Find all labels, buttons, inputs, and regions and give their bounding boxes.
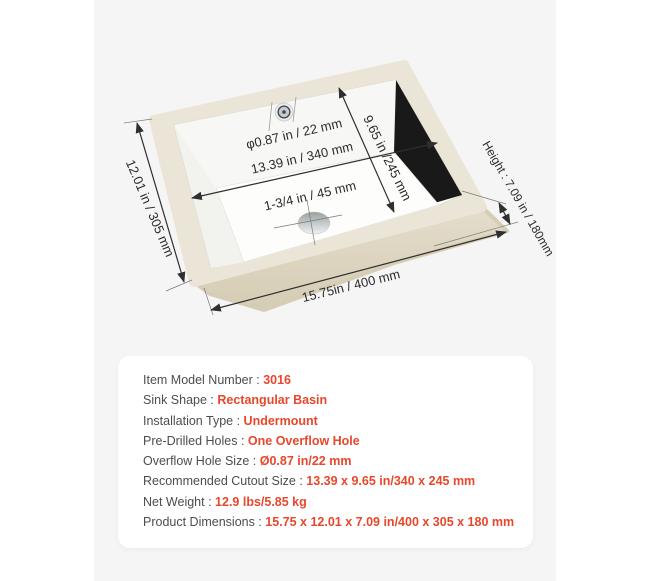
spec-label: Item Model Number : [143, 373, 260, 387]
spec-row-overflow-size: Overflow Hole Size : Ø0.87 in/22 mm [143, 451, 515, 471]
spec-row-weight: Net Weight : 12.9 lbs/5.85 kg [143, 492, 515, 512]
spec-value: 13.39 x 9.65 in/340 x 245 mm [306, 474, 475, 488]
spec-label: Pre-Drilled Holes : [143, 434, 244, 448]
spec-label: Recommended Cutout Size : [143, 474, 303, 488]
sink-dimension-diagram: 12.01 in / 305 mm 15.75in / 400 mm Heigh… [94, 0, 556, 352]
spec-value: 15.75 x 12.01 x 7.09 in/400 x 305 x 180 … [265, 515, 514, 529]
spec-label: Product Dimensions : [143, 515, 262, 529]
spec-value: One Overflow Hole [248, 434, 360, 448]
spec-label: Overflow Hole Size : [143, 454, 256, 468]
spec-value: 3016 [263, 373, 291, 387]
spec-value: Undermount [244, 414, 318, 428]
spec-value: Rectangular Basin [217, 393, 327, 407]
spec-value: Ø0.87 in/22 mm [260, 454, 352, 468]
overflow-hole-icon [275, 103, 293, 121]
spec-label: Installation Type : [143, 414, 240, 428]
height-label: Height : 7.09 in / 180mm [479, 139, 556, 259]
drain-hole [298, 212, 330, 234]
spec-row-holes: Pre-Drilled Holes : One Overflow Hole [143, 431, 515, 451]
spec-row-dimensions: Product Dimensions : 15.75 x 12.01 x 7.0… [143, 512, 515, 532]
spec-label: Sink Shape : [143, 393, 214, 407]
spec-label: Net Weight : [143, 495, 212, 509]
spec-row-model: Item Model Number : 3016 [143, 370, 515, 390]
spec-value: 12.9 lbs/5.85 kg [215, 495, 307, 509]
spec-row-cutout: Recommended Cutout Size : 13.39 x 9.65 i… [143, 471, 515, 491]
spec-row-shape: Sink Shape : Rectangular Basin [143, 390, 515, 410]
spec-card: Item Model Number : 3016 Sink Shape : Re… [118, 356, 533, 548]
spec-row-installation: Installation Type : Undermount [143, 411, 515, 431]
product-image: 12.01 in / 305 mm 15.75in / 400 mm Heigh… [0, 0, 650, 581]
